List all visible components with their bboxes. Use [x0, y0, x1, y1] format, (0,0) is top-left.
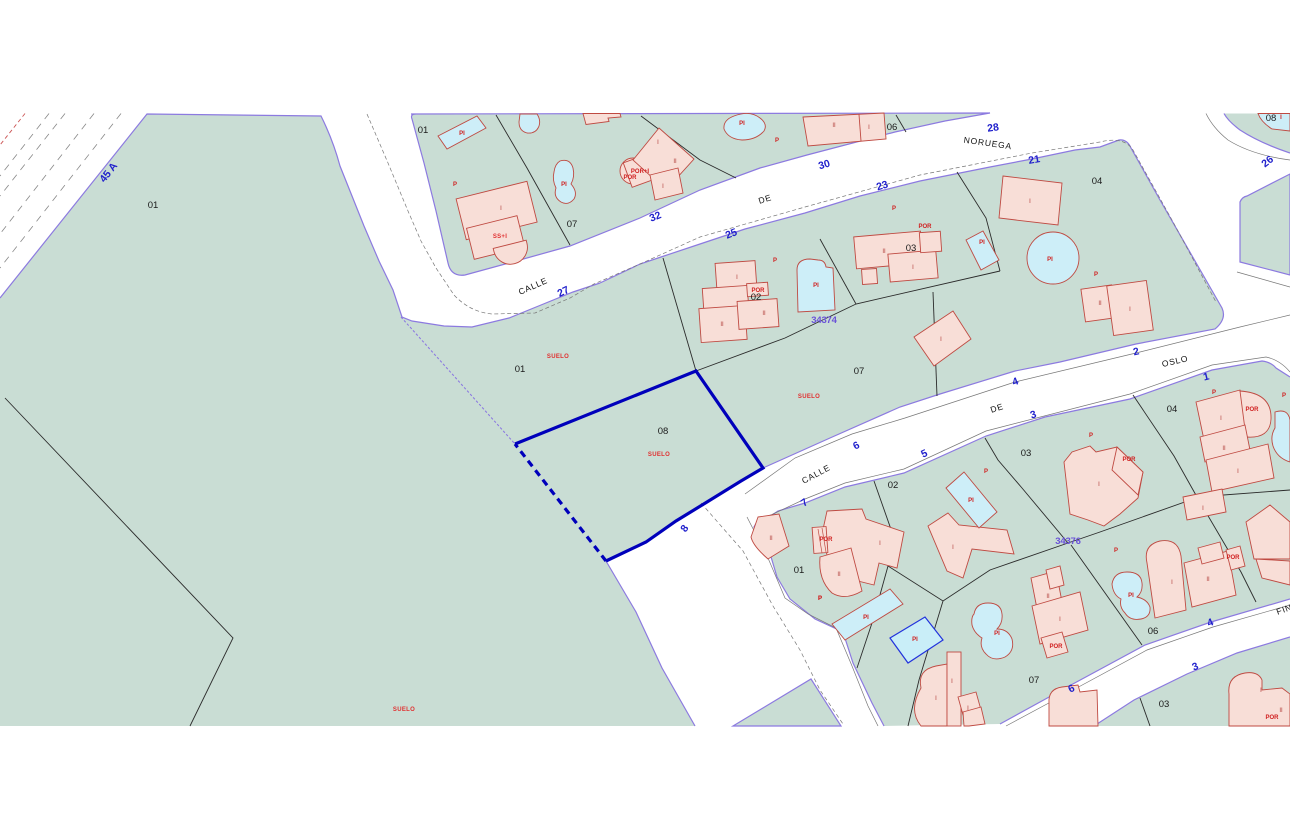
- svg-text:II: II: [1279, 708, 1283, 714]
- svg-text:34374: 34374: [811, 315, 837, 326]
- svg-text:PI: PI: [968, 498, 974, 504]
- svg-text:08: 08: [658, 426, 669, 437]
- svg-text:SUELO: SUELO: [393, 707, 415, 713]
- svg-text:PI: PI: [863, 615, 869, 621]
- svg-text:P: P: [984, 469, 988, 475]
- svg-text:P: P: [773, 258, 777, 264]
- svg-text:PI: PI: [994, 631, 1000, 637]
- svg-text:II: II: [720, 322, 724, 328]
- svg-text:II: II: [1098, 301, 1102, 307]
- svg-text:P: P: [1094, 272, 1098, 278]
- svg-text:SS+I: SS+I: [493, 234, 507, 240]
- svg-text:P: P: [1282, 393, 1286, 399]
- svg-text:01: 01: [794, 565, 805, 576]
- svg-text:POR: POR: [1245, 407, 1259, 413]
- svg-text:PI: PI: [561, 182, 567, 188]
- svg-text:PI: PI: [1128, 593, 1134, 599]
- svg-text:03: 03: [1159, 699, 1170, 710]
- svg-text:II: II: [1222, 446, 1226, 452]
- svg-text:34376: 34376: [1055, 536, 1080, 547]
- svg-text:06: 06: [887, 122, 898, 133]
- svg-text:PI: PI: [979, 240, 985, 246]
- svg-text:01: 01: [418, 125, 429, 136]
- svg-text:SUELO: SUELO: [648, 452, 670, 458]
- svg-text:06: 06: [1148, 626, 1159, 637]
- svg-text:POR: POR: [918, 224, 932, 230]
- svg-text:01: 01: [515, 364, 526, 375]
- svg-text:POR: POR: [1265, 715, 1279, 721]
- svg-text:PI: PI: [739, 121, 745, 127]
- svg-text:03: 03: [1021, 448, 1032, 459]
- svg-text:II: II: [673, 159, 677, 165]
- svg-text:P: P: [453, 182, 457, 188]
- svg-text:P: P: [818, 596, 822, 602]
- svg-text:P: P: [1212, 390, 1216, 396]
- svg-text:21: 21: [1027, 153, 1041, 167]
- svg-text:04: 04: [1092, 176, 1103, 187]
- svg-text:07: 07: [1029, 675, 1040, 686]
- svg-text:II: II: [769, 536, 773, 542]
- svg-text:01: 01: [148, 200, 159, 211]
- svg-text:07: 07: [854, 366, 865, 377]
- svg-text:SUELO: SUELO: [798, 394, 820, 400]
- svg-text:04: 04: [1167, 404, 1178, 415]
- svg-text:POR: POR: [623, 175, 637, 181]
- svg-text:POR: POR: [1122, 457, 1136, 463]
- svg-text:II: II: [1206, 577, 1210, 583]
- svg-text:II: II: [832, 123, 836, 129]
- svg-text:POR: POR: [819, 537, 833, 543]
- svg-text:II: II: [837, 572, 841, 578]
- svg-text:PI: PI: [1047, 257, 1053, 263]
- svg-text:08: 08: [1266, 113, 1277, 124]
- svg-text:II: II: [762, 311, 766, 317]
- svg-text:P: P: [892, 206, 896, 212]
- svg-text:POR: POR: [1226, 555, 1240, 561]
- svg-text:PI: PI: [459, 131, 465, 137]
- svg-text:P: P: [775, 138, 779, 144]
- svg-text:POR: POR: [751, 288, 765, 294]
- svg-text:POR: POR: [1049, 644, 1063, 650]
- svg-text:II: II: [1046, 594, 1050, 600]
- svg-text:P: P: [1089, 433, 1093, 439]
- svg-text:PI: PI: [912, 637, 918, 643]
- svg-text:02: 02: [888, 480, 899, 491]
- svg-text:SUELO: SUELO: [547, 354, 569, 360]
- svg-text:07: 07: [567, 219, 578, 230]
- svg-text:03: 03: [906, 243, 917, 254]
- svg-text:28: 28: [987, 121, 1000, 135]
- svg-text:P: P: [1114, 548, 1118, 554]
- svg-text:PI: PI: [813, 283, 819, 289]
- svg-text:II: II: [882, 249, 886, 255]
